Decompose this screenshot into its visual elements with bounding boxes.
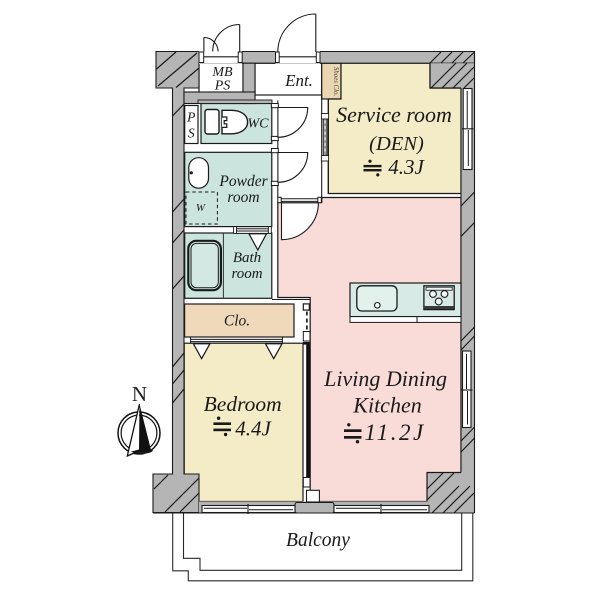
svg-text:P: P bbox=[186, 110, 195, 125]
svg-text:Living Dining: Living Dining bbox=[323, 366, 447, 391]
svg-text:Powder: Powder bbox=[218, 173, 268, 190]
svg-text:4.3J: 4.3J bbox=[388, 155, 425, 179]
svg-text:N: N bbox=[132, 382, 147, 406]
svg-text:Bedroom: Bedroom bbox=[204, 392, 282, 416]
svg-text:Service room: Service room bbox=[336, 102, 452, 127]
svg-text:Kitchen: Kitchen bbox=[352, 393, 421, 418]
svg-text:Bath: Bath bbox=[233, 250, 261, 266]
svg-text:Ent.: Ent. bbox=[284, 71, 313, 90]
svg-text:Shoes Clo.: Shoes Clo. bbox=[332, 67, 339, 96]
svg-text:11.2J: 11.2J bbox=[365, 420, 426, 445]
svg-text:Balcony: Balcony bbox=[286, 530, 350, 551]
svg-text:(DEN): (DEN) bbox=[369, 133, 424, 155]
svg-text:W: W bbox=[196, 202, 206, 214]
svg-text:WC: WC bbox=[248, 117, 270, 132]
svg-text:Clo.: Clo. bbox=[224, 313, 250, 330]
svg-text:PS: PS bbox=[214, 79, 231, 94]
svg-text:S: S bbox=[188, 126, 195, 141]
svg-text:room: room bbox=[227, 189, 259, 206]
svg-text:4.4J: 4.4J bbox=[235, 417, 272, 441]
svg-text:room: room bbox=[231, 266, 262, 282]
